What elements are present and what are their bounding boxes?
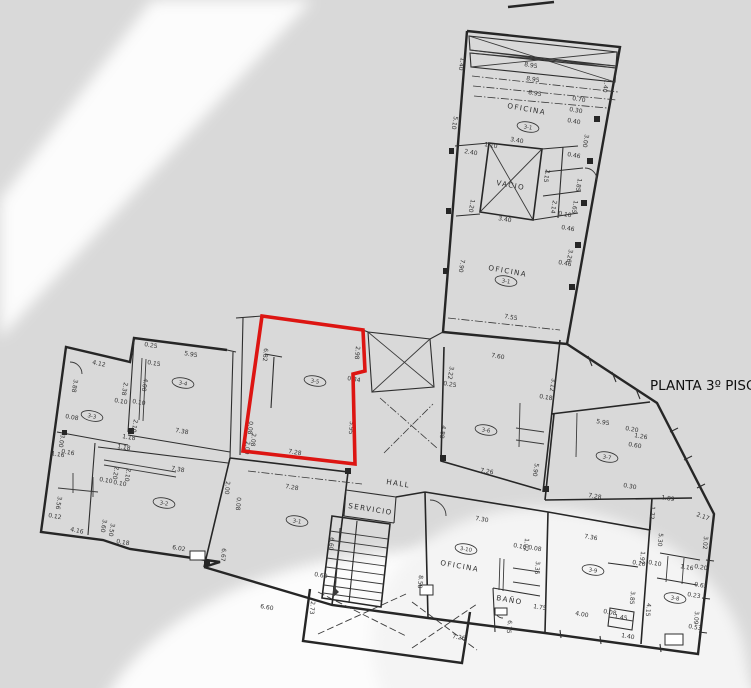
dimension-label: 0.25: [144, 341, 159, 350]
dimension-label: 3.85: [628, 591, 636, 605]
dimension-label: 4.16: [70, 526, 85, 536]
dimension-label: 0.46: [567, 151, 582, 160]
dimension-label: 5.30: [656, 533, 664, 547]
dimension-label: 2.14: [549, 200, 558, 215]
dimension-label: 0.10: [114, 397, 129, 406]
dimension-label: 1.72: [648, 506, 656, 520]
dimension-label: 0.12: [48, 512, 63, 521]
dimension-label: 2.98: [353, 346, 361, 360]
dimension-label: 1.18: [122, 433, 137, 442]
dimension-label: 3.00: [57, 434, 66, 449]
dimension-label: 1.89: [661, 494, 676, 503]
dimension-label: 1.18: [117, 443, 132, 452]
unit-tag: 3-6: [474, 423, 497, 437]
unit-tag: 3-5: [303, 374, 326, 388]
dimension-label: 0.30: [623, 482, 638, 491]
dimension-label: 0.46: [558, 259, 573, 268]
dimension-label: 6.02: [172, 544, 187, 553]
svg-text:3-7: 3-7: [602, 454, 612, 461]
dimension-label: 0.60: [628, 441, 643, 450]
top-edge-fragment: [508, 2, 554, 7]
floorplan-page: { "title": { "text": "PLANTA 3º PISO" },…: [0, 0, 751, 688]
dimension-label: 1.16: [51, 450, 66, 459]
dimension-label: 0.15: [147, 359, 162, 368]
dimension-label: 0.10: [113, 479, 128, 488]
unit-tag: 3-4: [171, 376, 194, 390]
room-label: HALL: [386, 477, 411, 490]
dimension-label: 6.75: [505, 620, 513, 634]
svg-text:3-3: 3-3: [87, 413, 97, 421]
svg-text:3-1: 3-1: [501, 278, 511, 285]
floorplan-drawing: 8.958.958.951.401.405.100.700.300.403.00…: [0, 0, 751, 688]
dimension-label: 1.40: [457, 57, 466, 72]
svg-text:3-1: 3-1: [523, 124, 533, 131]
dimension-label: 7.28: [285, 483, 300, 492]
unit-tag: 3-7: [595, 450, 618, 464]
dimension-label: 8.95: [526, 75, 541, 84]
room-label: SERVICIO: [348, 501, 394, 517]
dimension-label: 3.00: [581, 134, 590, 149]
dimension-label: 3.35: [533, 561, 541, 575]
dimension-label: 6.60: [327, 537, 335, 551]
dimension-label: 8.95: [528, 89, 543, 98]
dimension-label: 8.58: [416, 575, 424, 589]
dimension-label: 3.22: [446, 366, 455, 381]
dimension-label: 1.10: [484, 141, 499, 150]
dimension-label: 0.40: [567, 117, 582, 126]
dimension-label: 7.26: [480, 467, 495, 476]
dimension-label: 8.95: [524, 61, 539, 70]
dimension-label: 2.10: [130, 419, 139, 434]
dimension-label: 3.40: [498, 215, 513, 224]
dimension-label: 0.10: [558, 210, 573, 219]
dimension-label: 5.90: [531, 463, 540, 478]
dimension-label: 2.15: [542, 169, 551, 184]
dimension-label: 6.82: [261, 348, 269, 362]
dimension-label: 5.95: [184, 350, 199, 359]
dimension-label: 2.00: [223, 481, 231, 495]
page-title: PLANTA 3º PISO: [650, 378, 751, 394]
dimension-label: 1.20: [467, 199, 476, 214]
dimension-label: 0.70: [572, 95, 587, 104]
svg-text:3-5: 3-5: [310, 378, 320, 385]
dimension-label: 0.46: [561, 224, 576, 233]
room-label: VACIO: [496, 178, 526, 192]
dimension-label: 0.08: [234, 497, 242, 511]
dimension-label: 0.10: [99, 476, 114, 485]
dimension-label: 4.15: [644, 603, 652, 617]
dimension-label: 3.56: [54, 496, 63, 511]
dimension-label: 2.40: [464, 148, 479, 157]
svg-text:3-2: 3-2: [159, 500, 169, 507]
dimension-label: 7.38: [171, 465, 186, 474]
dimension-label: 2.38: [120, 382, 129, 397]
dimension-label: 6.67: [219, 548, 227, 562]
dimension-label: 4.88: [438, 425, 447, 440]
dimension-label: 2.17: [695, 511, 710, 522]
unit-tag: 3-2: [152, 496, 175, 510]
dimension-label: 1.85: [574, 178, 583, 193]
dimension-label: 3.02: [701, 536, 709, 550]
dimension-label: 7.90: [457, 259, 466, 274]
svg-text:3-1: 3-1: [292, 518, 302, 525]
dimension-label: 7.38: [175, 427, 190, 436]
dimension-label: 7.60: [491, 352, 506, 361]
dimension-label: 4.12: [92, 359, 107, 369]
dimension-label: 3.12: [548, 378, 557, 393]
svg-text:3-4: 3-4: [178, 380, 188, 388]
dimension-label: 3.40: [510, 136, 525, 145]
dimension-label: 5.10: [450, 116, 459, 131]
dimension-label: 3.60: [99, 519, 108, 534]
unit-tag: 3-1: [516, 120, 539, 134]
unit-tag: 3-3: [80, 409, 104, 423]
svg-text:3-6: 3-6: [481, 427, 491, 435]
dimension-label: 0.10: [132, 398, 147, 407]
dimension-label: 5.95: [596, 418, 611, 427]
dimension-label: 0.25: [443, 380, 458, 389]
dimension-label: 7.55: [504, 313, 519, 322]
dimension-label: 3.09: [692, 611, 700, 625]
highlighted-unit-outline[interactable]: [243, 316, 365, 464]
dimension-label: 3.50: [107, 523, 116, 538]
room-label: OFICINA: [507, 101, 547, 117]
unit-tag: 3-1: [285, 514, 308, 528]
dimension-label: 0.08: [65, 413, 80, 422]
dimension-label: 2.73: [308, 601, 316, 615]
dimension-label: 3.88: [70, 379, 79, 394]
dimension-label: 0.18: [539, 393, 554, 402]
watermark-swoosh: [0, 0, 751, 688]
dimension-label: 1.26: [634, 432, 649, 441]
dimension-label: 0.30: [569, 106, 584, 115]
